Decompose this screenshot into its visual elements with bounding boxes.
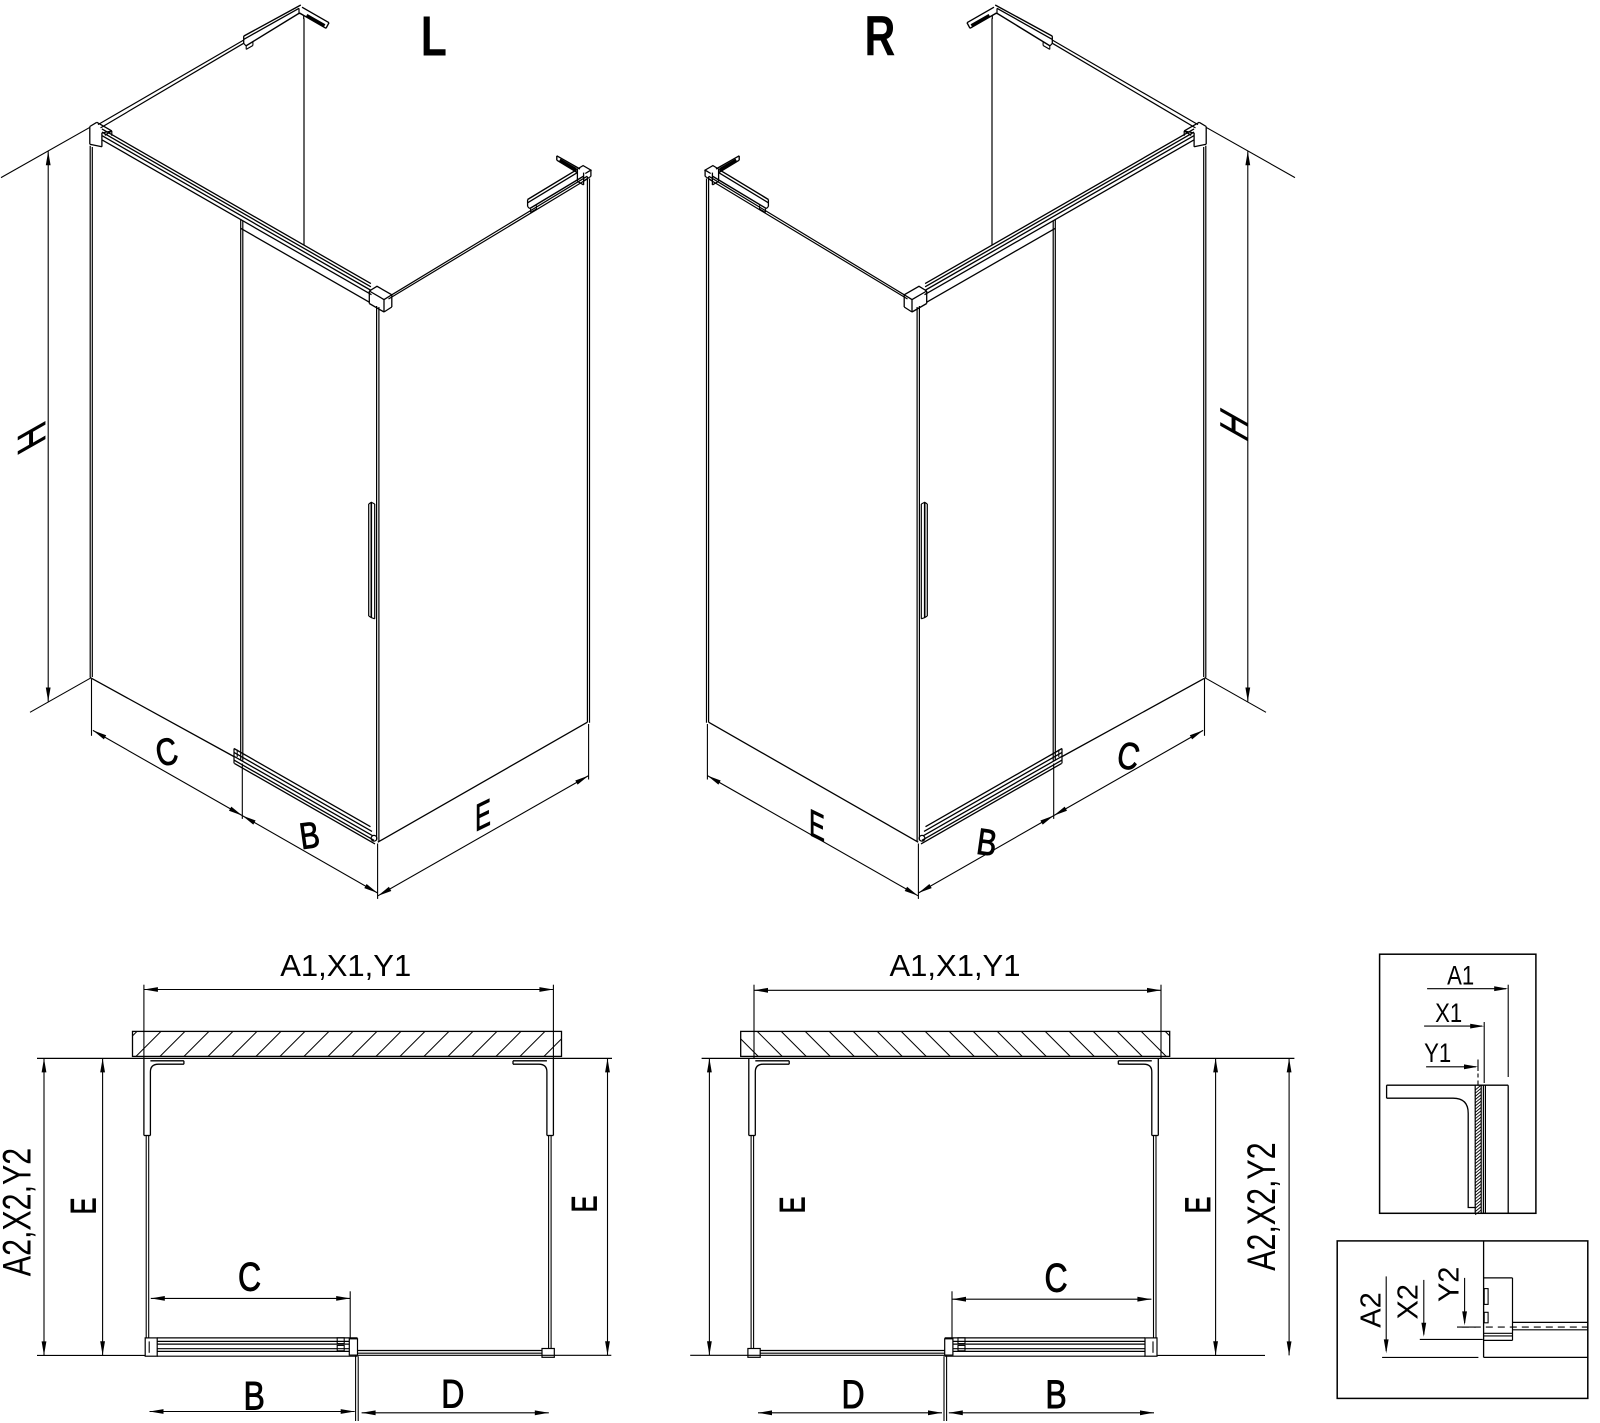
svg-text:Y2: Y2 xyxy=(1434,1267,1466,1302)
svg-text:A1: A1 xyxy=(1447,962,1474,992)
svg-text:D: D xyxy=(441,1371,464,1416)
svg-text:R: R xyxy=(865,4,896,68)
svg-text:A1,X1,Y1: A1,X1,Y1 xyxy=(890,948,1021,983)
svg-text:B: B xyxy=(1045,1372,1066,1417)
svg-text:X1: X1 xyxy=(1435,999,1462,1029)
svg-text:C: C xyxy=(238,1254,261,1299)
svg-text:L: L xyxy=(421,4,447,68)
svg-text:E: E xyxy=(774,1197,813,1214)
svg-text:X2: X2 xyxy=(1393,1284,1425,1319)
svg-text:E: E xyxy=(1179,1197,1218,1214)
svg-text:A1,X1,Y1: A1,X1,Y1 xyxy=(280,948,411,983)
svg-text:C: C xyxy=(1044,1255,1067,1300)
svg-text:E: E xyxy=(566,1196,605,1213)
svg-text:E: E xyxy=(65,1198,104,1215)
svg-text:E: E xyxy=(809,800,825,851)
svg-text:A2,X2,Y2: A2,X2,Y2 xyxy=(0,1148,40,1276)
svg-text:D: D xyxy=(841,1372,864,1417)
svg-text:A2: A2 xyxy=(1356,1292,1388,1327)
svg-text:B: B xyxy=(244,1373,265,1418)
svg-text:Y1: Y1 xyxy=(1424,1039,1451,1069)
svg-text:A2,X2,Y2: A2,X2,Y2 xyxy=(1239,1142,1284,1270)
svg-text:E: E xyxy=(475,789,491,840)
